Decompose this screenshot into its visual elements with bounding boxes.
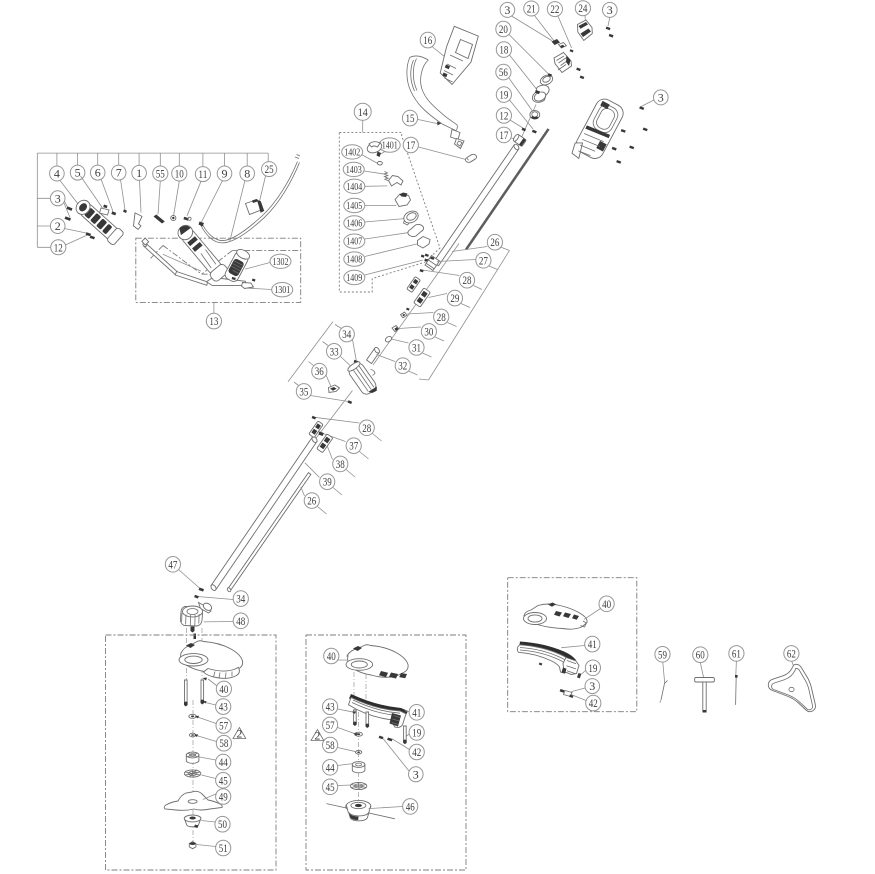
svg-text:16: 16 xyxy=(423,33,432,47)
svg-text:1407: 1407 xyxy=(346,237,362,248)
svg-text:1402: 1402 xyxy=(344,147,360,158)
svg-text:42: 42 xyxy=(589,696,598,710)
svg-text:60: 60 xyxy=(696,648,705,662)
svg-text:25: 25 xyxy=(265,162,274,176)
svg-text:19: 19 xyxy=(588,661,597,675)
svg-text:28: 28 xyxy=(437,310,446,324)
svg-text:32: 32 xyxy=(398,359,407,373)
svg-text:1406: 1406 xyxy=(346,219,362,230)
svg-text:29: 29 xyxy=(450,291,459,305)
svg-text:34: 34 xyxy=(236,592,245,606)
svg-text:41: 41 xyxy=(588,637,597,651)
svg-text:48: 48 xyxy=(236,614,245,628)
svg-text:1403: 1403 xyxy=(346,165,362,176)
svg-text:57: 57 xyxy=(219,719,228,733)
svg-text:38: 38 xyxy=(336,457,345,471)
svg-text:35: 35 xyxy=(299,384,308,398)
svg-text:17: 17 xyxy=(406,138,415,152)
svg-text:19: 19 xyxy=(499,88,508,102)
svg-text:3: 3 xyxy=(658,90,664,104)
svg-text:1401: 1401 xyxy=(382,141,398,152)
svg-text:2: 2 xyxy=(314,729,320,743)
svg-text:46: 46 xyxy=(406,799,415,813)
svg-text:28: 28 xyxy=(362,421,371,435)
svg-text:24: 24 xyxy=(578,1,587,15)
svg-text:9: 9 xyxy=(222,167,228,181)
svg-text:2: 2 xyxy=(55,219,61,233)
svg-text:57: 57 xyxy=(326,718,335,732)
svg-text:49: 49 xyxy=(219,790,228,804)
svg-text:20: 20 xyxy=(499,22,508,36)
svg-text:3: 3 xyxy=(413,767,419,781)
svg-text:30: 30 xyxy=(424,324,433,338)
svg-text:3: 3 xyxy=(55,191,61,205)
svg-text:55: 55 xyxy=(156,167,165,181)
svg-text:36: 36 xyxy=(315,364,324,378)
svg-text:39: 39 xyxy=(323,475,332,489)
svg-text:13: 13 xyxy=(209,314,218,328)
svg-text:1408: 1408 xyxy=(346,255,362,266)
svg-text:44: 44 xyxy=(326,760,335,774)
svg-text:2: 2 xyxy=(236,727,242,741)
svg-text:6: 6 xyxy=(95,166,101,180)
svg-text:58: 58 xyxy=(326,738,335,752)
svg-text:3: 3 xyxy=(589,679,595,693)
svg-text:62: 62 xyxy=(787,646,796,660)
svg-text:28: 28 xyxy=(463,273,472,287)
svg-text:3: 3 xyxy=(607,3,613,17)
svg-text:47: 47 xyxy=(168,557,177,571)
svg-text:14: 14 xyxy=(358,105,368,119)
svg-text:26: 26 xyxy=(307,494,316,508)
svg-text:27: 27 xyxy=(479,253,488,267)
svg-text:22: 22 xyxy=(550,2,559,16)
svg-text:12: 12 xyxy=(54,240,63,254)
svg-text:15: 15 xyxy=(406,111,415,125)
svg-text:34: 34 xyxy=(342,327,351,341)
svg-text:5: 5 xyxy=(75,166,81,180)
svg-text:11: 11 xyxy=(198,167,207,181)
svg-text:51: 51 xyxy=(219,841,228,855)
svg-text:1409: 1409 xyxy=(346,273,362,284)
svg-text:1405: 1405 xyxy=(346,201,362,212)
svg-text:40: 40 xyxy=(219,682,228,696)
svg-text:10: 10 xyxy=(175,167,184,181)
svg-text:44: 44 xyxy=(219,755,228,769)
svg-text:56: 56 xyxy=(499,65,508,79)
svg-text:26: 26 xyxy=(490,235,499,249)
svg-text:17: 17 xyxy=(499,128,508,142)
svg-text:50: 50 xyxy=(218,817,227,831)
svg-text:12: 12 xyxy=(499,109,508,123)
svg-text:37: 37 xyxy=(349,439,358,453)
svg-text:43: 43 xyxy=(326,700,335,714)
svg-text:33: 33 xyxy=(330,344,339,358)
svg-text:18: 18 xyxy=(499,43,508,57)
svg-text:40: 40 xyxy=(602,597,611,611)
svg-text:1: 1 xyxy=(136,166,142,180)
svg-text:59: 59 xyxy=(658,647,667,661)
svg-text:1301: 1301 xyxy=(274,285,290,296)
svg-text:1404: 1404 xyxy=(346,182,362,193)
svg-text:7: 7 xyxy=(116,166,122,180)
svg-text:43: 43 xyxy=(219,700,228,714)
svg-text:8: 8 xyxy=(244,167,250,181)
svg-text:19: 19 xyxy=(412,725,421,739)
svg-text:31: 31 xyxy=(412,341,421,355)
svg-text:42: 42 xyxy=(412,745,421,759)
svg-text:40: 40 xyxy=(327,649,336,663)
svg-text:58: 58 xyxy=(219,736,228,750)
svg-text:3: 3 xyxy=(504,3,510,17)
svg-text:21: 21 xyxy=(527,2,536,16)
svg-text:61: 61 xyxy=(732,646,741,660)
svg-text:45: 45 xyxy=(326,780,335,794)
svg-text:45: 45 xyxy=(219,773,228,787)
svg-text:41: 41 xyxy=(412,705,421,719)
svg-text:4: 4 xyxy=(54,167,60,181)
svg-text:1302: 1302 xyxy=(273,257,289,268)
